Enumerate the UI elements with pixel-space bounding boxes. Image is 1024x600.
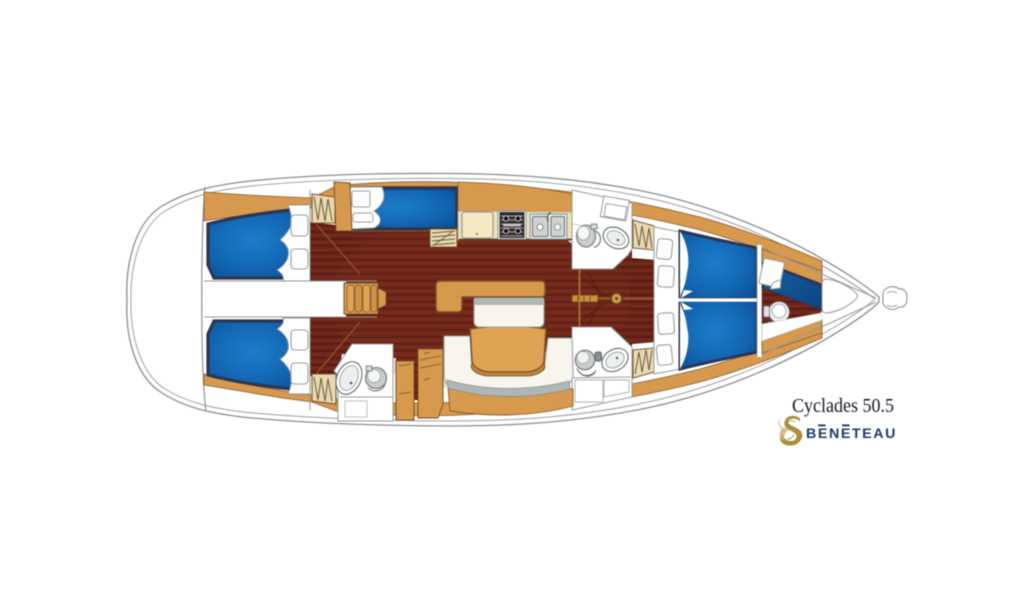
- svg-text:BENETEAU: BENETEAU: [806, 426, 897, 441]
- svg-text:Cyclades 50.5: Cyclades 50.5: [792, 395, 894, 417]
